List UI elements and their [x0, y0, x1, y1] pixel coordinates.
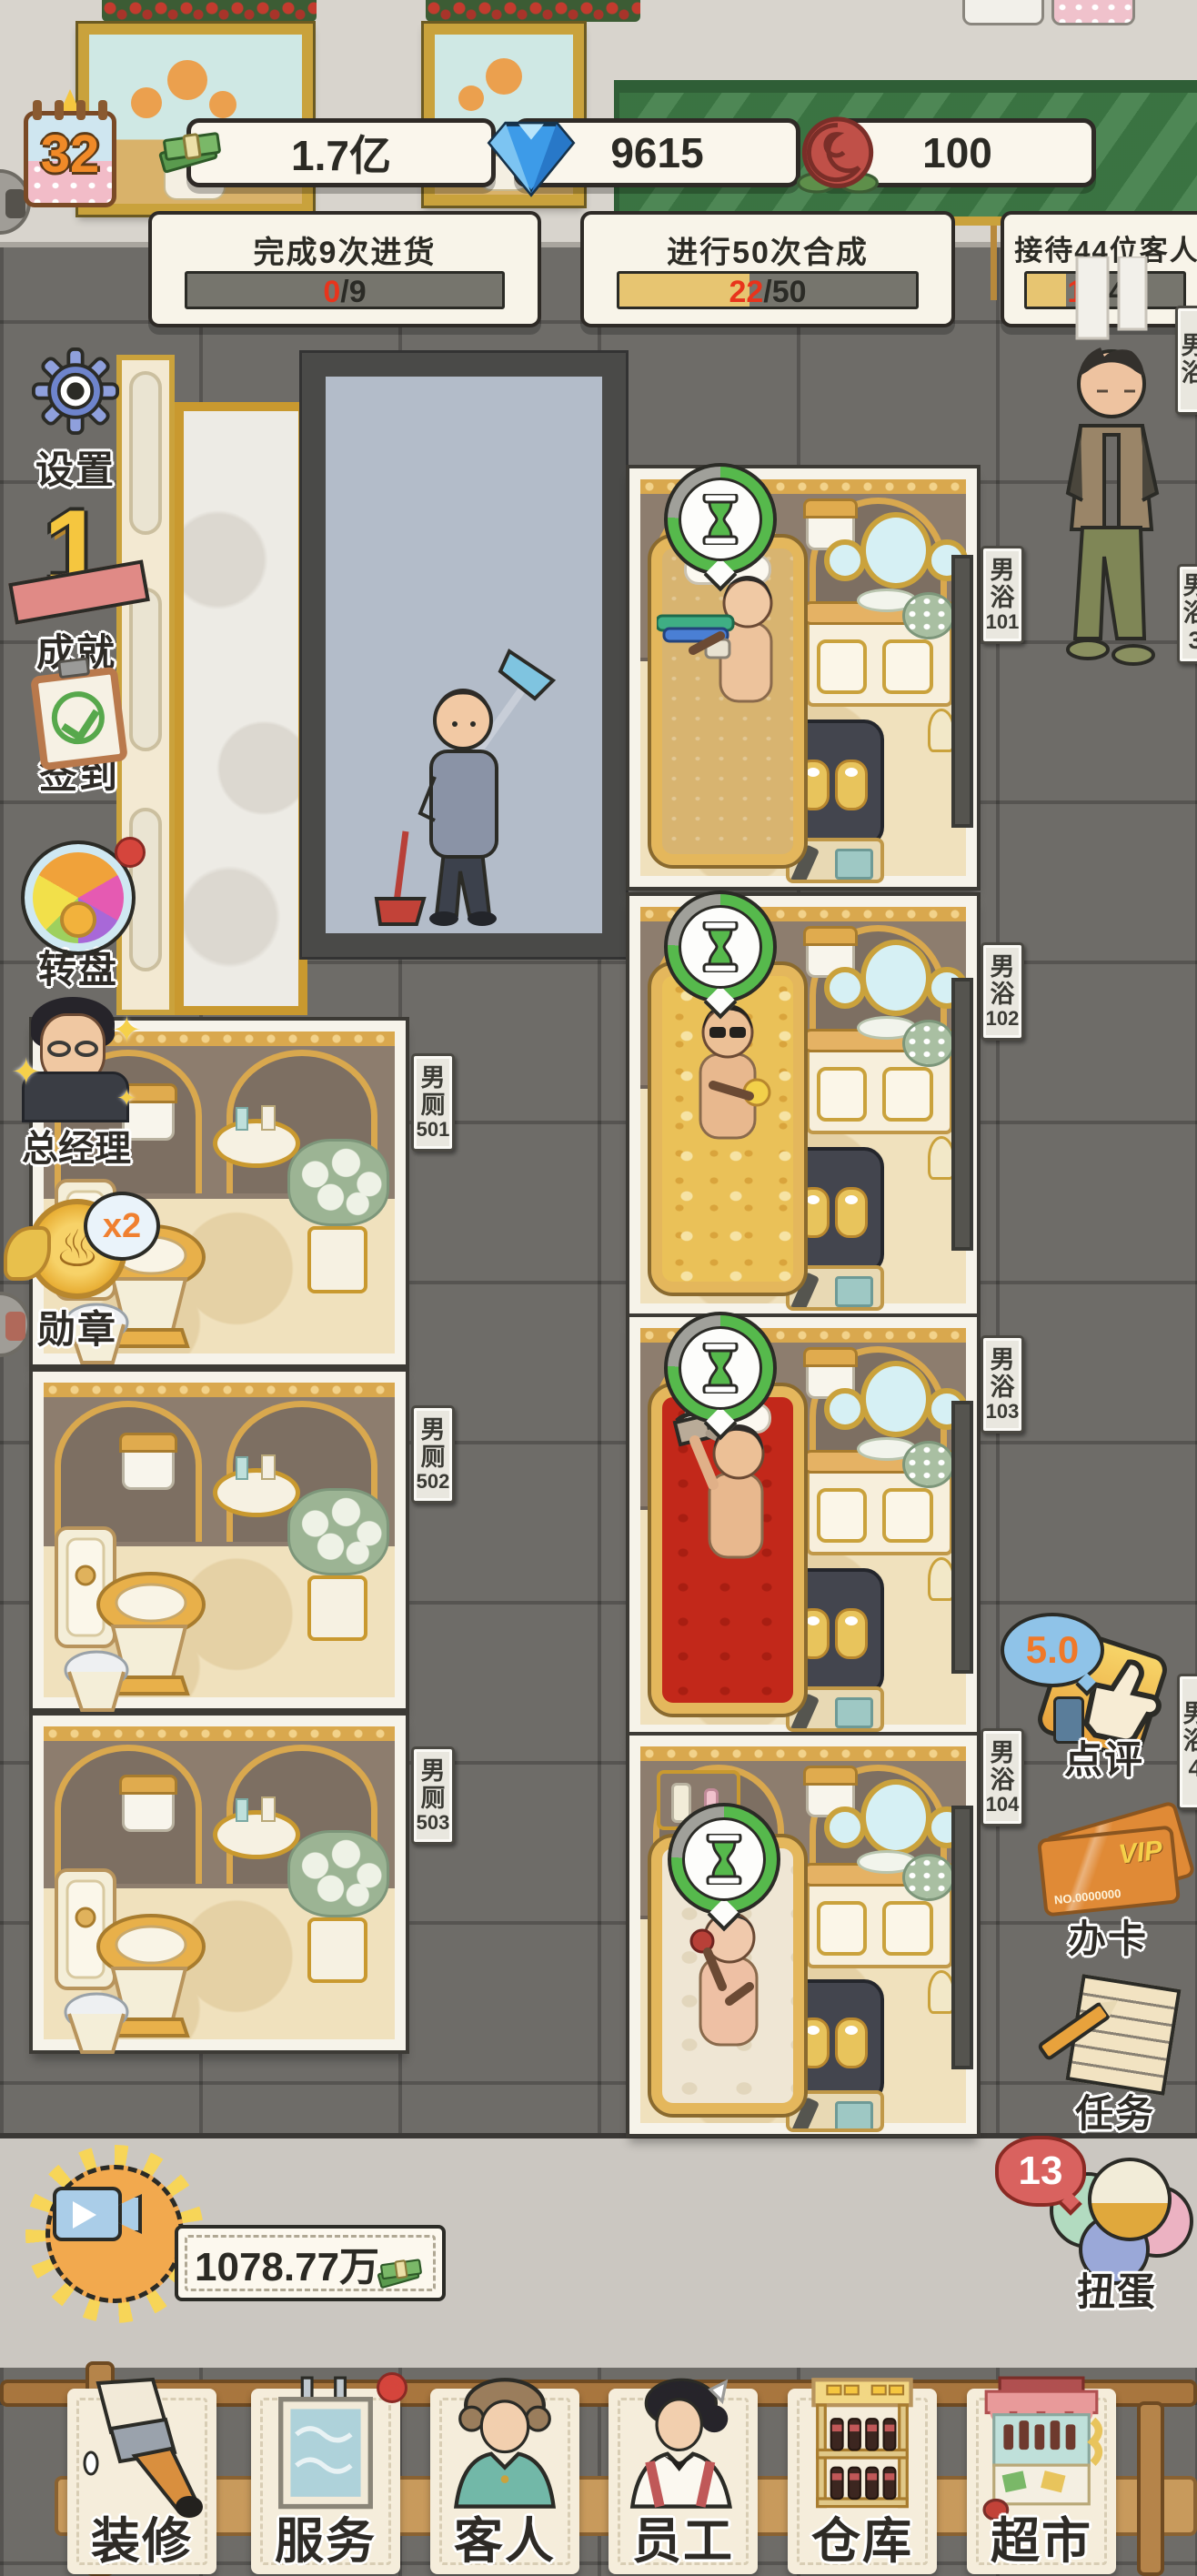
rose-counter[interactable]: 100 — [819, 118, 1096, 187]
reward-amount: 1078.77万 — [195, 2234, 379, 2292]
vip-card-button[interactable]: VIP NO.0000000 办卡 — [1028, 1817, 1197, 1963]
quest-title: 进行50次合成 — [584, 227, 951, 272]
money-stack-icon — [155, 117, 242, 194]
towel-holder — [122, 1786, 175, 1832]
bather-sunglasses — [662, 994, 799, 1158]
flower-bed — [426, 0, 640, 22]
tab-label: 员工 — [609, 2501, 758, 2572]
review-label: 点评 — [1041, 1729, 1168, 1785]
sidebar-item-checkin[interactable]: 签到 — [20, 671, 138, 800]
customer-top-partial — [1051, 0, 1135, 25]
supermarket-icon — [973, 2376, 1110, 2521]
walking-customer[interactable] — [1041, 257, 1186, 684]
bath-room-102[interactable] — [629, 896, 977, 1314]
vanity-cabinet — [806, 612, 953, 707]
vip-label: 办卡 — [1044, 1908, 1172, 1964]
rose-value: 100 — [922, 128, 992, 177]
vanity-cabinet — [806, 1874, 953, 1968]
toilet-room-503[interactable] — [33, 1716, 406, 2050]
wall-table — [213, 1468, 300, 1517]
gear-icon — [32, 347, 119, 435]
notification-dot — [377, 2372, 407, 2403]
diamond-value: 9615 — [610, 128, 703, 177]
money-counter[interactable]: 1.7亿 — [186, 118, 496, 187]
vanity-cabinet — [806, 1040, 953, 1134]
vip-card-icon: VIP NO.0000000 — [1037, 1825, 1181, 1917]
bath-room-104[interactable] — [629, 1736, 977, 2134]
prize-wheel-icon — [25, 844, 132, 951]
golden-toilet — [49, 1867, 213, 2056]
tab-service[interactable]: 服务 — [251, 2389, 400, 2574]
money-stack-icon — [374, 2249, 437, 2303]
sparkle-icon: ✦ — [116, 1084, 136, 1112]
rose-bouquet — [287, 1488, 389, 1575]
tab-label: 超市 — [967, 2501, 1116, 2572]
vanity-cabinet — [806, 1461, 953, 1555]
reward-counter[interactable]: 1078.77万 — [175, 2225, 446, 2301]
staff-icon — [619, 2376, 747, 2512]
bath-room-101[interactable] — [629, 468, 977, 887]
sidebar-label: 总经理 — [4, 1119, 149, 1172]
door-panel — [951, 1401, 973, 1674]
checkin-clipboard-icon — [30, 667, 128, 771]
room-sign-bath-103: 男浴103 — [981, 1335, 1024, 1434]
door-panel — [951, 1806, 973, 2069]
hourglass-icon — [702, 1343, 739, 1394]
hourglass-icon — [702, 494, 739, 545]
door-panel — [951, 555, 973, 828]
room-sign-bath-101: 男浴101 — [981, 546, 1024, 644]
tasks-button[interactable]: 任务 — [1037, 1981, 1197, 2127]
hourglass-icon — [706, 1834, 742, 1885]
timer-bubble[interactable] — [668, 1803, 780, 1916]
quest-banner-restock[interactable]: 完成9次进货 0/9 — [148, 211, 541, 327]
diamond-counter[interactable]: 9615 — [514, 118, 800, 187]
bathtub-red[interactable] — [651, 1386, 804, 1714]
sidebar-label: 转盘 — [16, 939, 140, 994]
level-badge[interactable]: 32 — [24, 102, 116, 207]
rose-icon — [792, 110, 883, 201]
sidebar-item-achievements[interactable]: 1 成就 — [13, 498, 140, 680]
sidebar-item-medal[interactable]: ♨ x2 勋章 — [9, 1199, 146, 1354]
tab-decorate[interactable]: 装修 — [67, 2389, 216, 2574]
tab-label: 装修 — [67, 2501, 216, 2572]
customer-top-partial — [962, 0, 1044, 25]
gacha-label: 扭蛋 — [1053, 2261, 1181, 2317]
game-screen: 32 1.7亿 9615 100 完成9次进货 0/9 — [0, 0, 1197, 2576]
rose-bouquet — [287, 1830, 389, 1917]
review-button[interactable]: 5.0 点评 — [1001, 1613, 1197, 1795]
partial-sign: 男浴 — [1175, 306, 1197, 415]
marble-panel — [175, 402, 307, 1015]
room-sign-toilet-503: 男厕503 — [411, 1746, 455, 1845]
janitor-character[interactable] — [366, 640, 566, 931]
flower-pedestal — [307, 1226, 367, 1293]
bathtub-sand[interactable] — [651, 538, 804, 865]
quest-title: 完成9次进货 — [152, 227, 538, 272]
bathtub-beer[interactable] — [651, 965, 804, 1293]
sparkle-icon: ✦ — [11, 1052, 42, 1093]
level-value: 32 — [24, 124, 116, 185]
tab-label: 客人 — [430, 2501, 579, 2572]
quest-banner-merge[interactable]: 进行50次合成 22/50 — [580, 211, 955, 327]
room-sign-toilet-502: 男厕502 — [411, 1405, 455, 1504]
timer-bubble[interactable] — [664, 891, 777, 1003]
partial-sign: 男浴3 — [1177, 564, 1197, 664]
quest-progress-bar: 0/9 — [185, 271, 505, 309]
rose-bouquet — [287, 1139, 389, 1226]
quest-progress-bar: 22/50 — [617, 271, 919, 309]
notification-dot — [115, 837, 146, 868]
tab-warehouse[interactable]: 仓库 — [788, 2389, 937, 2574]
paintbrush-icon — [74, 2376, 210, 2521]
multiplier-badge: x2 — [84, 1192, 160, 1261]
wall-table — [213, 1810, 300, 1859]
door-panel — [951, 978, 973, 1251]
room-sign-toilet-501: 男厕501 — [411, 1053, 455, 1152]
tasks-label: 任务 — [1051, 2083, 1179, 2138]
sparkle-icon: ✦ — [111, 1010, 142, 1052]
timer-bubble[interactable] — [664, 1312, 777, 1424]
guest-icon — [441, 2376, 568, 2512]
tab-staff[interactable]: 员工 — [609, 2389, 758, 2574]
flower-pedestal — [307, 1575, 367, 1641]
flower-pedestal — [307, 1917, 367, 1983]
money-value: 1.7亿 — [291, 123, 391, 183]
tab-label: 仓库 — [788, 2501, 937, 2572]
video-play-icon — [53, 2187, 122, 2241]
sidebar-item-manager[interactable]: ✦ ✦ ✦ 总经理 — [16, 997, 135, 1179]
room-sign-bath-102: 男浴102 — [981, 942, 1024, 1041]
towel-holder — [122, 1444, 175, 1490]
tab-guests[interactable]: 客人 — [430, 2389, 579, 2574]
toilet-room-502[interactable] — [33, 1372, 406, 1708]
wall-table — [213, 1119, 300, 1168]
sidebar-label: 勋章 — [9, 1299, 146, 1354]
bath-room-103[interactable] — [629, 1317, 977, 1736]
flower-bed — [102, 0, 317, 22]
service-water-icon — [262, 2376, 389, 2512]
hourglass-icon — [702, 921, 739, 972]
tab-supermarket[interactable]: 超市 — [967, 2389, 1116, 2574]
gacha-button[interactable]: 13 扭蛋 — [995, 2136, 1197, 2318]
cleaning-corridor[interactable] — [302, 353, 626, 957]
sidebar-item-wheel[interactable]: 转盘 — [16, 844, 140, 994]
sidebar-item-settings[interactable]: 设置 — [16, 347, 135, 495]
timer-bubble[interactable] — [664, 463, 777, 576]
diamond-icon — [484, 112, 578, 199]
golden-toilet — [49, 1524, 213, 1714]
nav-post — [1137, 2401, 1164, 2576]
warehouse-icon — [799, 2376, 926, 2512]
tab-label: 服务 — [251, 2501, 400, 2572]
